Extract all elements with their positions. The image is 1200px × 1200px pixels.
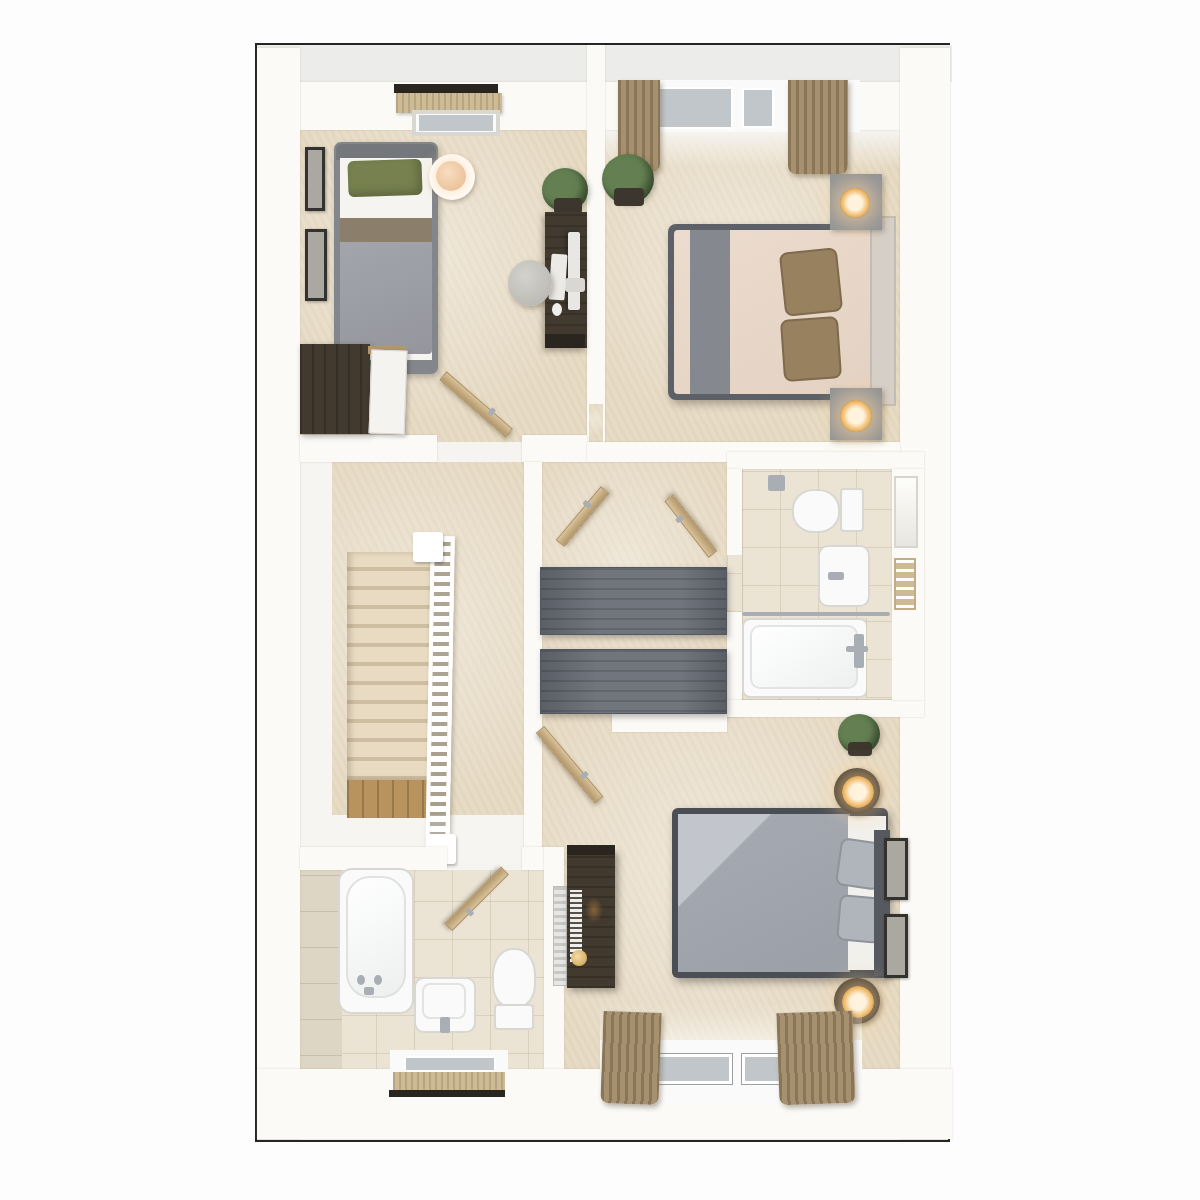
cupboard-unit-lower: [540, 649, 727, 714]
bedroom3-desk-back-edge: [567, 845, 615, 855]
door-handle: [487, 407, 496, 416]
bedroom2-curtain-right: [788, 80, 848, 174]
bedrooms-divider-wall: [587, 45, 605, 445]
bedroom3-radiator: [553, 886, 567, 986]
bedroom1-wardrobe: [300, 344, 370, 434]
ensuite-south-wall: [727, 700, 924, 717]
bedroom2-pillow-lower: [780, 316, 842, 382]
cupboard-unit-upper: [540, 567, 727, 635]
newel-post-top: [413, 532, 443, 562]
floorplan-render: [0, 0, 1200, 1200]
bedroom3-picture-upper: [884, 838, 908, 900]
ensuite-bathtub-inner: [750, 625, 858, 689]
bedroom1-stool: [508, 260, 552, 306]
bedroom1-green-pillow: [347, 159, 422, 198]
ensuite-basin: [818, 545, 870, 607]
bedroom1-gray-duvet: [340, 242, 432, 354]
bathroom-wall-tiles: [300, 870, 342, 1092]
bedroom1-south-wall-east: [522, 435, 587, 462]
bedroom2-plant-pot: [614, 188, 644, 206]
bathroom-basin-tap: [440, 1017, 450, 1033]
bathroom-blind-bar: [389, 1090, 505, 1097]
bathroom-basin-inner: [422, 983, 466, 1019]
landing-left-band: [300, 462, 332, 864]
bedroom3-window-glass-left: [650, 1054, 732, 1084]
west-exterior-wall: [257, 48, 300, 1139]
bedroom3-curtain-left: [600, 1011, 661, 1105]
bedroom1-wardrobe-open-door: [369, 349, 408, 434]
bedroom2-doorway-opening: [589, 404, 603, 442]
ensuite-shower-hose: [846, 646, 868, 652]
ensuite-wall-window: [894, 476, 918, 548]
bathroom-window-glass: [404, 1056, 496, 1072]
staircase-treads: [347, 552, 430, 780]
bedroom1-desk-shelf: [545, 334, 585, 348]
bathroom-north-wall-west: [300, 847, 447, 870]
bedroom2-headboard-panel: [870, 216, 896, 406]
bathroom-toilet-cistern: [494, 1004, 534, 1030]
bedroom3-lamp-north: [842, 776, 874, 808]
bedroom3-north-wall: [612, 714, 727, 732]
bedroom2-pillow-upper: [779, 247, 843, 317]
bedroom1-taupe-throw: [340, 218, 432, 242]
ensuite-tub-ledge: [866, 618, 892, 698]
bedroom3-plant-pot: [848, 742, 872, 756]
ensuite-shower-rail: [742, 612, 890, 616]
bedroom2-bed-runner: [690, 230, 730, 394]
bedroom2-window-glass-left: [655, 87, 733, 129]
ensuite-toilet-roll-holder: [768, 475, 785, 491]
bedroom1-mouse: [552, 303, 562, 316]
bedroom3-curtain-right: [776, 1011, 855, 1106]
bedroom3-picture-lower: [884, 914, 908, 978]
bathroom-bath-spout: [364, 987, 374, 995]
bedroom2-window-glass-right: [742, 88, 774, 128]
bedroom3-folded-throw: [678, 814, 774, 910]
bedroom3-desk-clutter: [585, 897, 603, 923]
bedroom1-south-wall-west: [300, 435, 437, 462]
bedroom1-picture-upper: [305, 147, 325, 211]
bedroom1-window-pelmet: [394, 84, 498, 93]
bathroom-bath-tap-right: [374, 975, 382, 985]
door-handle: [579, 771, 588, 780]
bathroom-bath-tap-left: [357, 975, 365, 985]
bedroom2-lamp-north: [840, 188, 870, 218]
bedroom2-lamp-south: [840, 400, 872, 432]
bedroom1-picture-lower: [305, 229, 327, 301]
door-handle: [582, 500, 591, 509]
bathroom-toilet-bowl: [492, 948, 536, 1008]
bedroom1-table-lamp: [436, 161, 466, 191]
ensuite-doorway-opening: [727, 555, 742, 612]
bedroom1-monitor: [568, 232, 580, 310]
ensuite-toilet-bowl: [792, 489, 840, 533]
door-handle: [675, 514, 684, 523]
ensuite-towel-rail: [894, 558, 916, 610]
ensuite-north-wall: [727, 452, 924, 469]
bathroom-north-wall-east: [522, 847, 544, 870]
floorplan: [255, 43, 950, 1142]
ensuite-toilet-cistern: [840, 488, 864, 532]
bedroom3-gold-dish: [571, 950, 587, 966]
bedroom1-monitor-stand: [565, 278, 585, 292]
bedroom1-window-glass: [419, 115, 493, 131]
ensuite-basin-tap: [828, 572, 844, 580]
stairs-wood-landing: [347, 780, 430, 818]
